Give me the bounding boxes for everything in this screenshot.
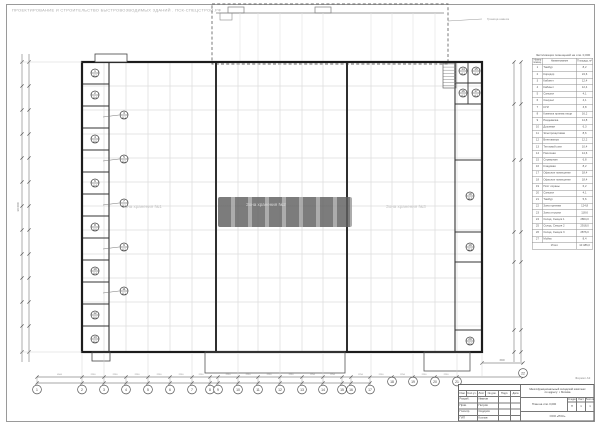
room-number: 17 (474, 89, 478, 93)
table-cell: Кабинет (543, 78, 577, 85)
col-header-area: Площадь, м² (576, 58, 592, 65)
axis-number: 22 (521, 371, 525, 375)
total-value: 10 486,0 (576, 243, 592, 250)
room-schedule: Номер помещ. Наименование Площадь, м² 1Т… (532, 58, 593, 250)
table-row: 7КУИ3,8 (532, 104, 593, 111)
balloon-leader (103, 159, 119, 161)
table-cell: 20 (532, 190, 542, 197)
table-cell: Электрощитовая (543, 131, 577, 138)
axis-number: 18 (390, 380, 394, 384)
tb-sheets-value: 1 (586, 402, 595, 412)
format-note: Формат А3 (575, 377, 590, 380)
axis-number: 10 (236, 388, 240, 392)
tb-organization: ООО «ПСК» (521, 412, 595, 422)
table-cell: Коридор (543, 71, 577, 78)
table-cell: 24,6 (576, 71, 592, 78)
table-cell: 3,8 (576, 104, 592, 111)
table-cell: Офисное помещение (543, 177, 577, 184)
room-number: 2 (94, 91, 96, 95)
title-block: Изм.Кол.уч.Лист№ док.Подп.ДатаРазраб.Ива… (458, 384, 594, 421)
table-cell: 2864,0 (576, 217, 592, 224)
table-cell: 118,6 (576, 210, 592, 217)
table-cell: Тамбур (543, 65, 577, 72)
table-cell: 12,4 (576, 85, 592, 92)
table-row: 23Зона отгрузки118,6 (532, 210, 593, 217)
table-body: 1Тамбур8,22Коридор24,63Кабинет12,44Кабин… (532, 65, 593, 250)
table-row: 5Санузел4,1 (532, 91, 593, 98)
room-number: 1 (94, 69, 96, 73)
table-cell: 6,8 (576, 157, 592, 164)
entrance-canopy (95, 54, 127, 62)
table-cell: Офисное помещение (543, 170, 577, 177)
room-number: 10 (93, 267, 97, 271)
table-row: 24Склад. Секция 12864,0 (532, 217, 593, 224)
room-area: 4,3 (474, 94, 478, 97)
room-number: 16 (461, 89, 465, 93)
room-area: 8,2 (122, 160, 126, 163)
table-cell: 21 (532, 197, 542, 204)
room-area: 12,8 (468, 248, 473, 251)
axis-number: 12 (278, 388, 282, 392)
table-cell: Серверная (543, 157, 577, 164)
table-cell: 9 (532, 118, 542, 125)
room-area: 8,1 (122, 116, 126, 119)
room-area: 8,4 (93, 272, 97, 275)
table-cell: 26 (532, 230, 542, 237)
table-cell: 6,2 (576, 184, 592, 191)
table-cell: 3 (532, 78, 542, 85)
dim-label: 2250 (330, 374, 336, 376)
table-row: 3Кабинет12,4 (532, 78, 593, 85)
balloon-leader (103, 291, 119, 293)
table-cell: 8,6 (576, 131, 592, 138)
total-label: Итого (532, 243, 576, 250)
tb-sheet-value: 1 (577, 402, 586, 412)
dim-label: 2250 (226, 374, 232, 376)
axis-number: 17 (368, 388, 372, 392)
table-row: 22Зона приемки124,8 (532, 203, 593, 210)
room-area: 4,1 (474, 72, 478, 75)
dim-label: 2250 (444, 374, 450, 376)
table-cell: КУИ (543, 104, 577, 111)
table-cell: 18 (532, 177, 542, 184)
dim-label: 2250 (289, 374, 295, 376)
table-cell: 5 (532, 91, 542, 98)
table-cell: 6 (532, 98, 542, 105)
dim-label: 2250 (267, 374, 273, 376)
table-cell: 8 (532, 111, 542, 118)
table-cell: 11 (532, 131, 542, 138)
loading-ramp (424, 352, 470, 371)
table-cell: 2 (532, 71, 542, 78)
room-area: 8,2 (122, 248, 126, 251)
porch (92, 352, 110, 361)
dim-label: 2250 (310, 374, 316, 376)
axis-number: 20 (433, 380, 437, 384)
table-cell: 8,2 (576, 164, 592, 171)
room-number: 8 (94, 223, 96, 227)
table-row: 21Тамбур5,6 (532, 197, 593, 204)
room-area: 4,3 (461, 94, 465, 97)
tb-role-label: ГИП (459, 415, 478, 421)
dim-label: 2250 (113, 374, 119, 376)
tb-date (511, 415, 521, 421)
table-cell: Душевая (543, 124, 577, 131)
dim-label: 2250 (91, 374, 97, 376)
table-row: 4Кабинет12,4 (532, 85, 593, 92)
axis-number: 14 (321, 388, 325, 392)
table-row: 11Электрощитовая8,6 (532, 131, 593, 138)
col-header-name: Наименование (543, 58, 577, 65)
room-number: 9 (123, 243, 125, 247)
room-area: 36,5 (468, 197, 473, 200)
table-cell: Зона отгрузки (543, 210, 577, 217)
table-cell: 14,6 (576, 151, 592, 158)
table-cell: 12,4 (576, 78, 592, 85)
balloon-leader (103, 247, 119, 249)
table-row: 19Пост охраны6,2 (532, 184, 593, 191)
room-area: 8,4 (93, 184, 97, 187)
table-title: Экспликация помещений на отм. 0,000 (532, 54, 594, 57)
table-cell: Кабинет (543, 85, 577, 92)
dim-label: 2250 (246, 374, 252, 376)
drawing-sheet: ПРОЕКТИРОВАНИЕ И СТРОИТЕЛЬСТВО БЫСТРОВОЗ… (0, 0, 600, 426)
table-row: 17Офисное помещение18,4 (532, 170, 593, 177)
tb-project-name: Многофункциональный складской комплекспо… (521, 385, 595, 398)
canopy-notch (228, 7, 244, 13)
room-number: 3 (123, 111, 125, 115)
room-number: 4 (94, 135, 96, 139)
table-cell: Санузел (543, 91, 577, 98)
table-cell: 14,8 (576, 118, 592, 125)
axis-number: 19 (411, 380, 415, 384)
dim-label: 2250 (422, 374, 428, 376)
table-cell: 23 (532, 210, 542, 217)
table-cell: 4 (532, 85, 542, 92)
axis-number: 6 (169, 388, 171, 392)
table-cell: Кладовая (543, 164, 577, 171)
room-area: 4,1 (461, 72, 465, 75)
room-number: 13 (93, 335, 97, 339)
balloon-leader (103, 115, 119, 117)
table-cell: Пост охраны (543, 184, 577, 191)
tb-drawing-title: План на отм. 0,000 (521, 398, 568, 412)
table-cell: 18,4 (576, 170, 592, 177)
table-cell: Склад. Секция 2 (543, 223, 577, 230)
table-cell: 10 (532, 124, 542, 131)
table-total-row: Итого10 486,0 (532, 243, 593, 250)
axis-number: 13 (300, 388, 304, 392)
room-number: 18 (468, 192, 472, 196)
dim-label: 2250 (199, 374, 205, 376)
dim-label: 2250 (157, 374, 163, 376)
zone-label-3: Зона хранения №3 (386, 204, 426, 209)
table-cell: 7 (532, 104, 542, 111)
table-cell: Склад. Секция 3 (543, 230, 577, 237)
table-cell: 4,1 (576, 190, 592, 197)
table-cell: 18,4 (576, 177, 592, 184)
stair-outline (443, 63, 456, 88)
table-cell: Склад. Секция 1 (543, 217, 577, 224)
table-cell: 13 (532, 144, 542, 151)
table-cell: 25 (532, 223, 542, 230)
table-cell: Тамбур (543, 197, 577, 204)
table-cell: Насосная (543, 151, 577, 158)
col-header-number: Номер помещ. (532, 58, 542, 65)
dim-label: 30 000 (16, 202, 20, 212)
table-row: 25Склад. Секция 22918,0 (532, 223, 593, 230)
axis-number: 1 (36, 388, 38, 392)
dim-label: 2250 (400, 374, 406, 376)
loading-ramp (205, 352, 345, 373)
table-cell: 6,3 (576, 124, 592, 131)
axis-number: 2 (81, 388, 83, 392)
table-cell: 8,2 (576, 65, 592, 72)
canopy-notch (315, 7, 331, 13)
table-cell: 14 (532, 151, 542, 158)
room-area: 8,6 (93, 228, 97, 231)
table-cell: 19 (532, 184, 542, 191)
table-row: 10Душевая6,3 (532, 124, 593, 131)
tb-role-name: Козлов (478, 415, 499, 421)
table-row: 12Венткамера12,2 (532, 137, 593, 144)
dim-label: 2250 (379, 374, 385, 376)
table-row: 9Раздевалка14,8 (532, 118, 593, 125)
table-cell: 2876,0 (576, 230, 592, 237)
axis-number: 7 (191, 388, 193, 392)
table-cell: Комната приема пищи (543, 111, 577, 118)
dim-label: 2250 (135, 374, 141, 376)
table-cell: 24 (532, 217, 542, 224)
table-cell: Тепловой узел (543, 144, 577, 151)
axis-number: 4 (125, 388, 127, 392)
room-area: 8,2 (93, 340, 97, 343)
canopy-leader (448, 19, 482, 21)
room-area: 8,6 (93, 316, 97, 319)
room-schedule-table: Экспликация помещений на отм. 0,000 Номе… (532, 54, 594, 250)
table-cell: Санузел (543, 190, 577, 197)
tb-signature (499, 415, 511, 421)
table-row: 18Офисное помещение18,4 (532, 177, 593, 184)
axis-number: 11 (256, 388, 260, 392)
axis-number: 3 (103, 388, 105, 392)
room-area: 8,4 (93, 96, 97, 99)
room-number: 11 (122, 287, 125, 291)
table-row: 1Тамбур8,2 (532, 65, 593, 72)
table-cell: 4,1 (576, 91, 592, 98)
table-cell: 16 (532, 164, 542, 171)
room-number: 5 (123, 155, 125, 159)
zone-label-1: Зона хранения №1 (122, 204, 162, 209)
table-cell: 8,4 (576, 236, 592, 243)
table-cell: 12 (532, 137, 542, 144)
table-cell: Венткамера (543, 137, 577, 144)
room-area: 8,6 (93, 140, 97, 143)
room-area: 10,2 (468, 342, 473, 345)
table-row: 14Насосная14,6 (532, 151, 593, 158)
table-row: 8Комната приема пищи16,2 (532, 111, 593, 118)
canopy-note: Граница навеса (487, 17, 509, 21)
table-cell: 12,2 (576, 137, 592, 144)
tb-revision-row (459, 385, 521, 391)
table-row: 20Санузел4,1 (532, 190, 593, 197)
room-area: 8,1 (122, 292, 126, 295)
axis-number: 8 (209, 388, 211, 392)
table-cell: 27 (532, 236, 542, 243)
table-cell: 15 (532, 157, 542, 164)
room-number: 19 (468, 243, 472, 247)
axis-number: 5 (147, 388, 149, 392)
table-row: 26Склад. Секция 32876,0 (532, 230, 593, 237)
table-row: 2Коридор24,6 (532, 71, 593, 78)
room-number: 12 (93, 311, 97, 315)
table-cell: 16,2 (576, 111, 592, 118)
zone-label-2: Зона хранения №2 (246, 202, 286, 207)
dim-label: 1500 (499, 359, 505, 362)
table-cell: 124,8 (576, 203, 592, 210)
table-row: 13Тепловой узел10,4 (532, 144, 593, 151)
axis-number: 9 (217, 388, 219, 392)
table-cell: 4,1 (576, 98, 592, 105)
canopy-detail (220, 13, 232, 20)
table-cell: 2918,0 (576, 223, 592, 230)
table-cell: Мойка (543, 236, 577, 243)
dim-label: 2250 (358, 374, 364, 376)
table-cell: 17 (532, 170, 542, 177)
table-cell: 10,4 (576, 144, 592, 151)
room-number: 15 (474, 67, 478, 71)
dim-label: 4500 (57, 374, 63, 376)
room-number: 20 (468, 337, 472, 341)
room-area: 8,2 (93, 74, 97, 77)
table-row: 6Санузел4,1 (532, 98, 593, 105)
axis-number: 15 (340, 388, 344, 392)
balloon-leader (103, 203, 119, 205)
tb-stage-value: П (568, 402, 577, 412)
table-row: 15Серверная6,8 (532, 157, 593, 164)
table-row: 16Кладовая8,2 (532, 164, 593, 171)
room-number: 6 (94, 179, 96, 183)
table-cell: 22 (532, 203, 542, 210)
table-cell: 1 (532, 65, 542, 72)
table-cell: Раздевалка (543, 118, 577, 125)
room-number: 7 (123, 199, 125, 203)
dim-label: 2250 (179, 374, 185, 376)
room-number: 14 (461, 67, 465, 71)
table-cell: 5,6 (576, 197, 592, 204)
table-row: 27Мойка8,4 (532, 236, 593, 243)
axis-number: 16 (349, 388, 353, 392)
table-cell: Зона приемки (543, 203, 577, 210)
table-cell: Санузел (543, 98, 577, 105)
